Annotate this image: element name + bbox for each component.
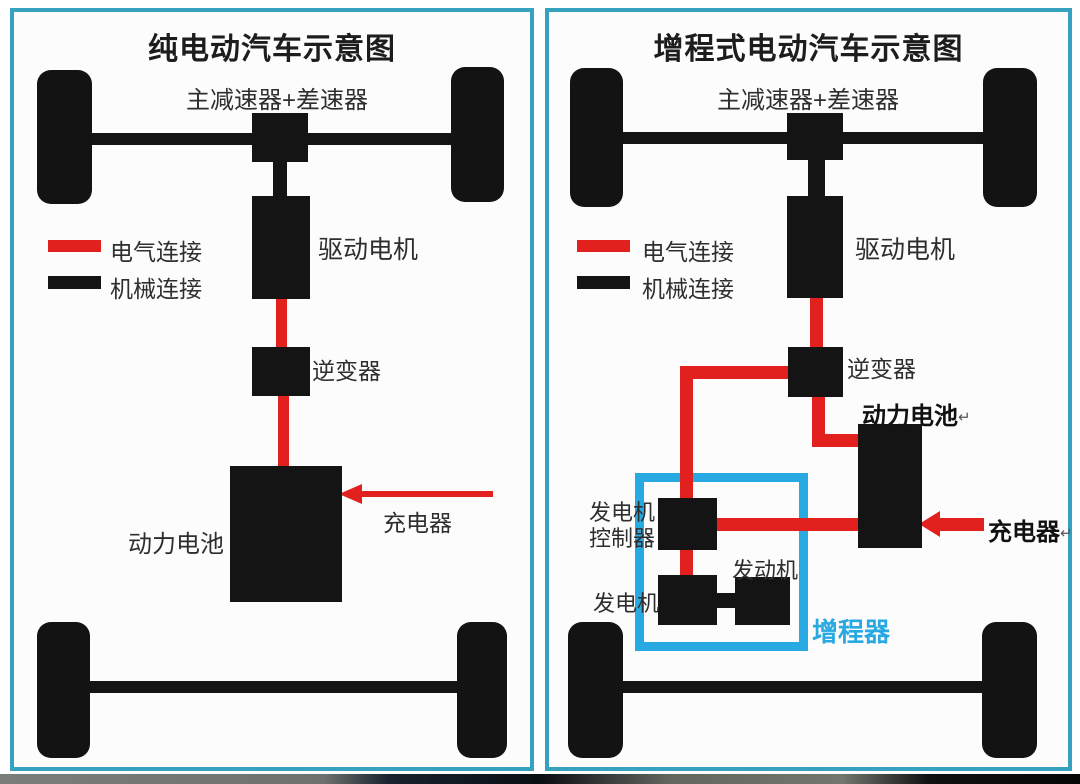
pure-ev-diagram-panel: 纯电动汽车示意图 主减速器+差速器 驱动电机 逆变器 动力电池 充电器 电气连接… — [10, 8, 534, 771]
legend-mechanical-label: 机械连接 — [642, 270, 734, 304]
power-battery-box — [230, 466, 342, 602]
inverter-label: 逆变器 — [847, 350, 916, 384]
screenshot-stage: 纯电动汽车示意图 主减速器+差速器 驱动电机 逆变器 动力电池 充电器 电气连接… — [0, 0, 1080, 784]
inverter-box — [788, 347, 843, 397]
rear-left-wheel — [568, 622, 623, 758]
rear-axle — [64, 681, 492, 693]
electrical-link-inverter-controller-vertical — [680, 366, 693, 506]
power-battery-label: 动力电池↵ — [862, 396, 971, 431]
reducer-differential-label: 主减速器+差速器 — [186, 80, 368, 115]
electrical-link-motor-inverter — [276, 298, 287, 349]
charger-label: 充电器↵ — [988, 512, 1073, 547]
electrical-link-inverter-battery — [278, 395, 289, 468]
legend-electrical-swatch — [577, 240, 630, 252]
power-battery-label: 动力电池 — [128, 524, 224, 559]
drive-motor-box — [787, 196, 843, 298]
return-mark-icon: ↵ — [958, 409, 971, 426]
rear-left-wheel — [37, 622, 90, 758]
electrical-link-inverter-controller-horizontal — [680, 366, 792, 379]
rear-axle — [599, 681, 1017, 693]
charger-arrowhead-icon — [919, 511, 940, 537]
generator-label: 发电机 — [593, 586, 659, 618]
electrical-link-motor-inverter — [810, 298, 823, 349]
charger-arrowhead-icon — [339, 484, 362, 504]
bottom-cropped-content-strip — [0, 774, 1080, 784]
power-battery-box — [858, 424, 922, 548]
drive-motor-box — [252, 196, 310, 299]
charger-label: 充电器 — [383, 504, 452, 538]
generator-controller-box — [658, 498, 717, 550]
legend-electrical-swatch — [48, 240, 101, 252]
range-extended-ev-title: 增程式电动汽车示意图 — [549, 24, 1068, 68]
range-extended-ev-diagram-panel: 增程式电动汽车示意图 主减速器+差速器 驱动电机 逆变器 增程器 动力电池↵ — [545, 8, 1072, 771]
pure-ev-title: 纯电动汽车示意图 — [14, 24, 530, 68]
front-left-wheel — [570, 68, 623, 207]
generator-controller-label: 发电机控制器 — [589, 500, 659, 552]
reducer-differential-label: 主减速器+差速器 — [717, 80, 899, 115]
front-right-wheel — [451, 67, 504, 202]
electrical-link-controller-battery — [715, 518, 863, 531]
legend-mechanical-label: 机械连接 — [110, 270, 202, 304]
front-left-wheel — [37, 70, 92, 204]
charger-arrow-line — [939, 518, 984, 531]
front-right-wheel — [983, 68, 1037, 207]
inverter-label: 逆变器 — [312, 352, 381, 386]
range-extender-label: 增程器 — [812, 612, 890, 649]
legend-electrical-label: 电气连接 — [110, 233, 202, 267]
charger-arrow-line — [359, 491, 493, 497]
legend-mechanical-swatch — [48, 276, 101, 289]
electrical-link-inverter-battery-horizontal — [812, 434, 864, 447]
drive-motor-label: 驱动电机 — [855, 230, 955, 266]
rear-right-wheel — [982, 622, 1037, 758]
legend-mechanical-swatch — [577, 276, 630, 289]
return-mark-icon: ↵ — [1060, 525, 1073, 542]
drive-motor-label: 驱动电机 — [318, 230, 418, 266]
reducer-differential-box — [787, 113, 843, 160]
mechanical-link-generator-engine — [715, 593, 737, 608]
rear-right-wheel — [457, 622, 507, 758]
mechanical-link-diff-motor — [273, 162, 287, 198]
engine-label: 发动机 — [732, 553, 798, 585]
mechanical-link-diff-motor — [808, 160, 825, 198]
inverter-box — [252, 347, 310, 396]
generator-box — [658, 575, 717, 625]
reducer-differential-box — [252, 113, 308, 162]
legend-electrical-label: 电气连接 — [642, 233, 734, 267]
